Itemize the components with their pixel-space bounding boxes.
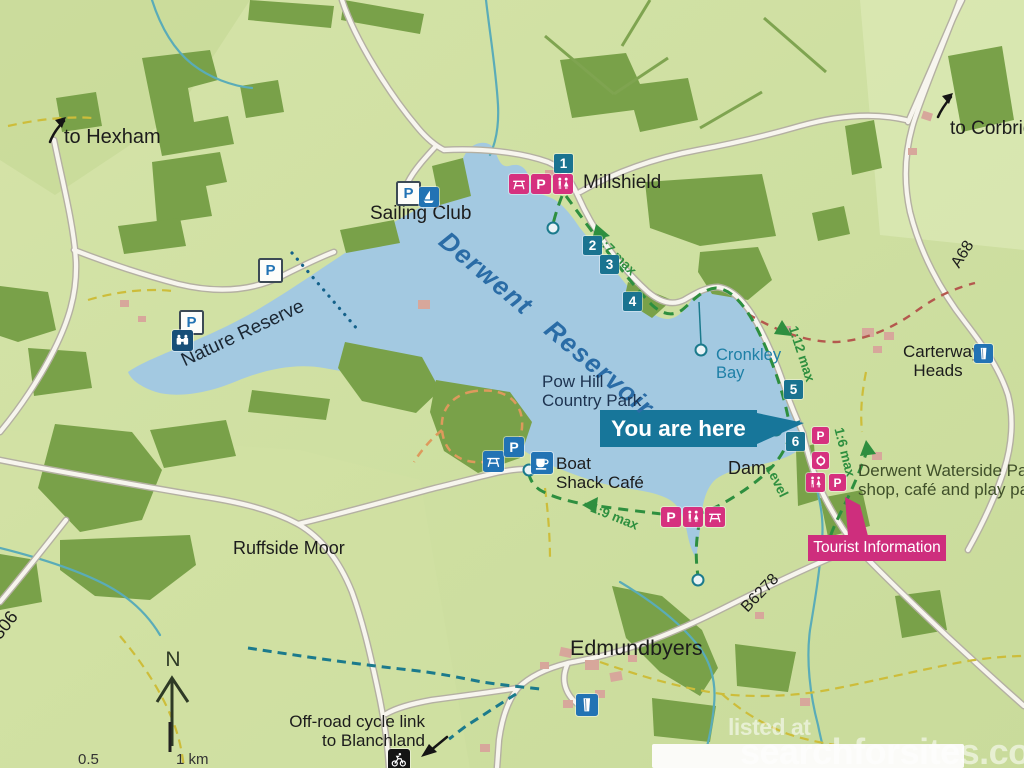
label-edmundbyers: Edmundbyers (570, 636, 703, 660)
scale-fragment: 0.5 (78, 752, 99, 768)
route-marker-2: 2 (583, 236, 602, 255)
picnic-icon (705, 507, 725, 527)
parking-icon: P (829, 474, 846, 491)
label-carterway-heads: Carterway Heads (903, 342, 973, 380)
map-artwork (0, 0, 1024, 768)
picnic-icon (509, 174, 529, 194)
cyclist-icon (388, 749, 410, 768)
scale-fragment: 1 km (176, 752, 209, 768)
parking-icon: P (661, 507, 681, 527)
toilets-icon (683, 507, 703, 527)
label-to-corbridge: to Corbridge (950, 118, 1024, 139)
toilets-icon (553, 174, 573, 194)
map-board: to Hexham to Corbridge Sailing Club Mill… (0, 0, 1024, 768)
route-marker-1: 1 (554, 154, 573, 173)
route-marker-5: 5 (784, 380, 803, 399)
cafe-icon (531, 452, 553, 474)
parking-icon: P (258, 258, 283, 283)
label-cycle-link: Off-road cycle link to Blanchland (253, 712, 425, 750)
route-marker-3: 3 (600, 255, 619, 274)
label-pow-hill: Pow Hill Country Park (542, 372, 641, 410)
parking-icon: P (531, 174, 551, 194)
parking-icon: P (812, 427, 829, 444)
label-millshield: Millshield (583, 172, 661, 193)
label-cronkley-bay: Cronkley Bay (716, 346, 781, 383)
label-waterside-park: Derwent Waterside Park shop, café and pl… (858, 461, 1024, 499)
parking-icon: P (396, 181, 421, 206)
label-to-hexham: to Hexham (64, 126, 161, 148)
route-marker-6: 6 (786, 432, 805, 451)
route-marker-4: 4 (623, 292, 642, 311)
pub-icon (974, 344, 993, 363)
parking-icon: P (504, 437, 524, 457)
tourist-information-banner: Tourist Information (808, 535, 946, 561)
label-north: N (162, 648, 184, 672)
pub-icon (576, 694, 598, 716)
you-are-here-text: You are here (600, 410, 757, 447)
sailing-club-icon (419, 187, 439, 207)
watermark-searchforsites: searchforsites.co.uk (740, 731, 1024, 768)
play-area-icon (812, 452, 829, 469)
label-ruffside-moor: Ruffside Moor (233, 538, 345, 558)
label-dam: Dam (728, 458, 766, 478)
picnic-icon (483, 451, 504, 472)
label-boat-shack-cafe: Boat Shack Café (556, 454, 644, 492)
binoculars-icon (172, 330, 193, 351)
toilets-icon (806, 473, 825, 492)
